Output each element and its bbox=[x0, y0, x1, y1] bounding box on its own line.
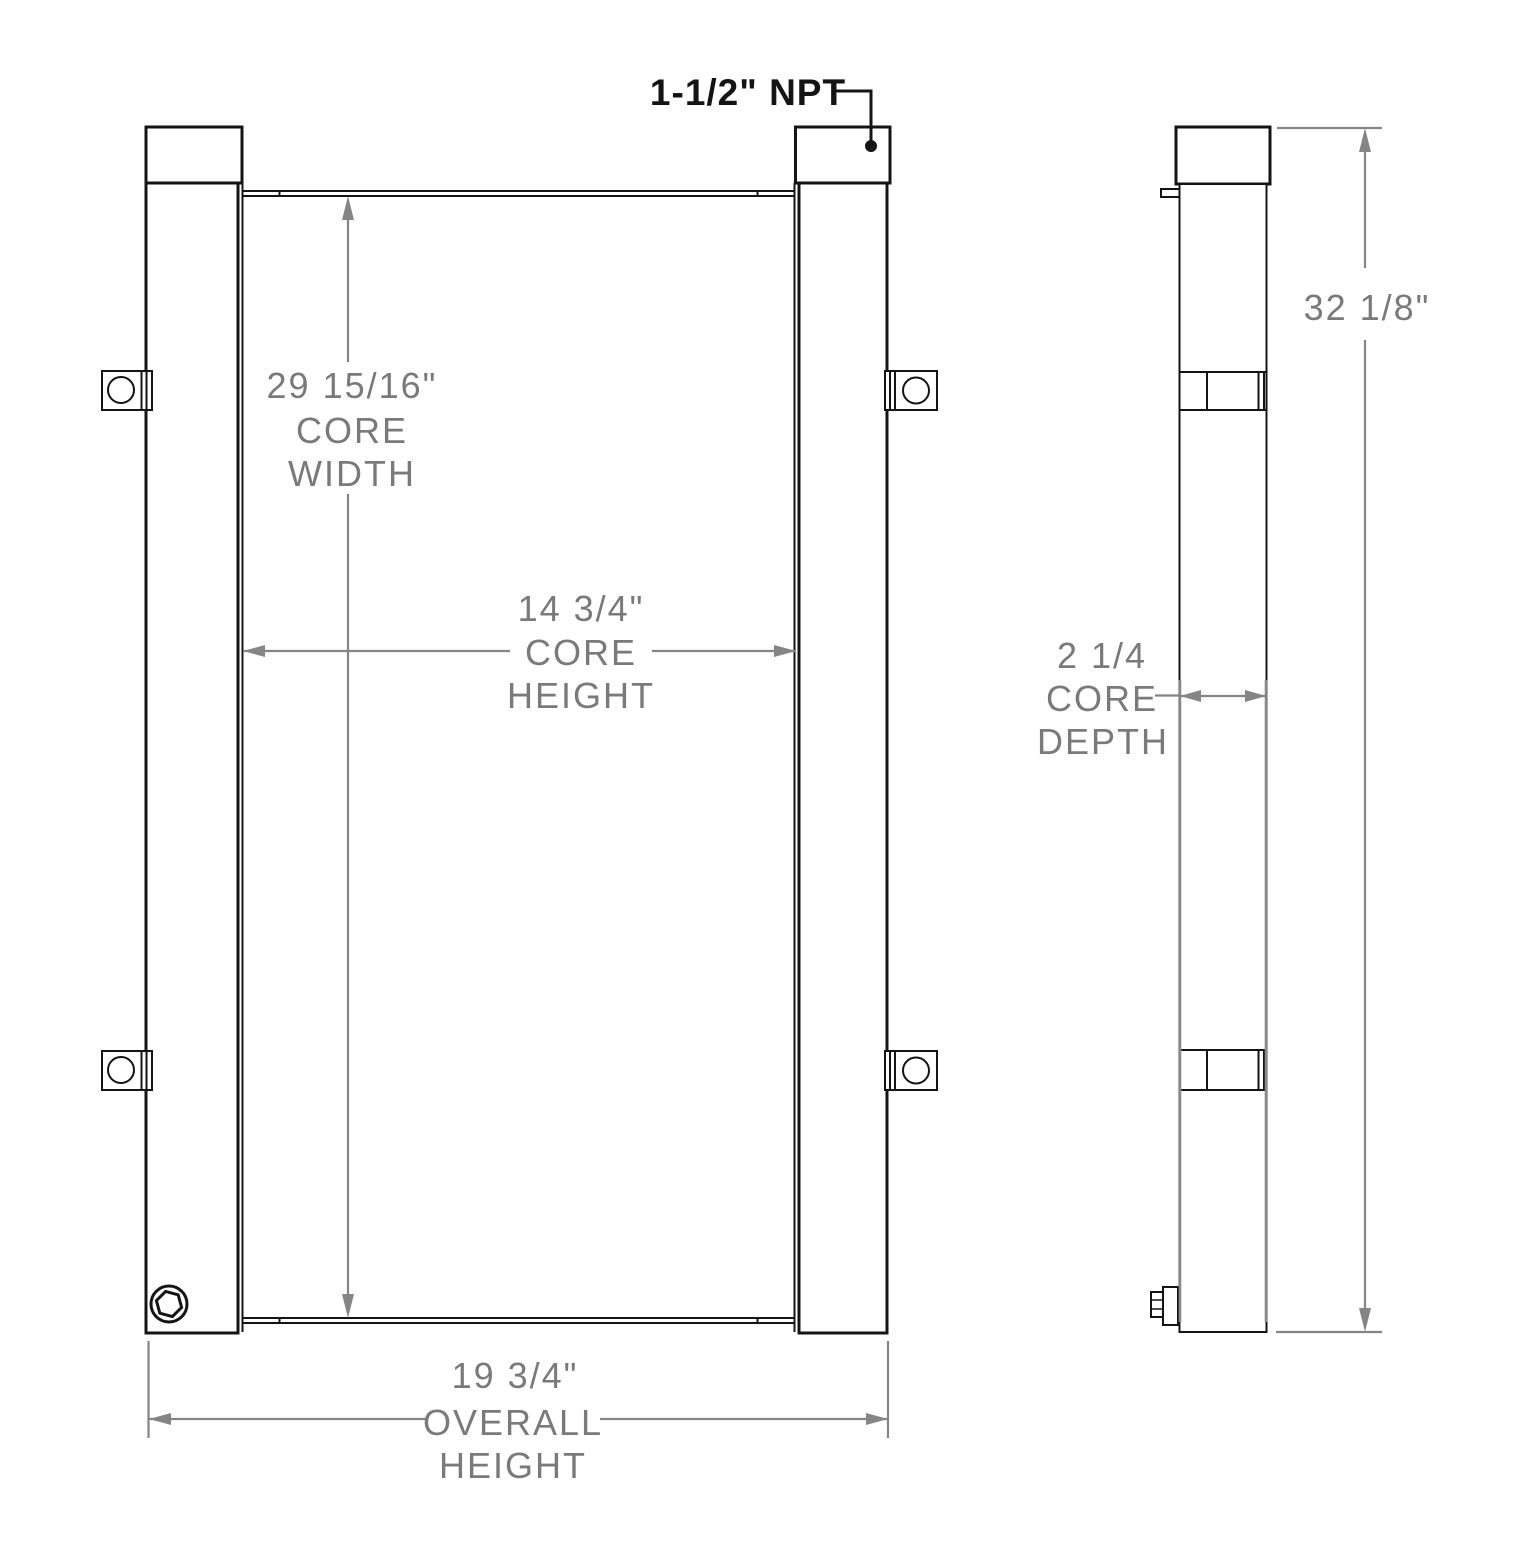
arrowhead-left-icon bbox=[243, 645, 265, 657]
core-height-label-1: CORE bbox=[525, 632, 637, 673]
mounting-bracket-left-bottom bbox=[102, 1051, 152, 1090]
drawing-canvas: 1-1/2" NPT 29 15/16" CORE WIDTH 14 3/4" … bbox=[0, 0, 1537, 1543]
core-width-label-1: CORE bbox=[296, 410, 408, 451]
arrowhead-up-icon bbox=[1359, 128, 1371, 152]
mounting-bracket-right-top bbox=[885, 371, 937, 410]
technical-drawing-page: 1-1/2" NPT 29 15/16" CORE WIDTH 14 3/4" … bbox=[0, 0, 1537, 1543]
left-tank-body bbox=[146, 183, 238, 1333]
arrowhead-right-icon bbox=[774, 645, 796, 657]
arrowhead-down-icon bbox=[1359, 1308, 1371, 1332]
side-body bbox=[1180, 184, 1267, 1332]
left-tank bbox=[146, 127, 243, 1333]
dimension-core-height: 14 3/4" CORE HEIGHT bbox=[243, 588, 796, 716]
core-width-value: 29 15/16" bbox=[267, 365, 438, 406]
right-tank-cap bbox=[796, 127, 891, 183]
right-tank bbox=[795, 127, 891, 1333]
side-tank-cap bbox=[1176, 127, 1270, 184]
overall-height-label-2: HEIGHT bbox=[439, 1445, 587, 1486]
arrowhead-left-icon bbox=[149, 1413, 171, 1425]
core-depth-label-2: DEPTH bbox=[1037, 721, 1169, 762]
bracket-plate bbox=[102, 1051, 152, 1090]
core-width-label-2: WIDTH bbox=[288, 453, 416, 494]
mounting-bracket-right-bottom bbox=[885, 1051, 937, 1090]
front-view bbox=[102, 127, 937, 1333]
left-tank-cap bbox=[146, 127, 242, 183]
side-drain-plug bbox=[1151, 1287, 1178, 1325]
core-height-label-2: HEIGHT bbox=[507, 675, 655, 716]
side-overall-height-value: 32 1/8" bbox=[1304, 287, 1431, 328]
dimension-overall-height: 19 3/4" OVERALL HEIGHT bbox=[149, 1341, 889, 1486]
core-face bbox=[243, 191, 795, 1323]
dimension-core-width: 29 15/16" CORE WIDTH bbox=[267, 196, 438, 1318]
core-height-value: 14 3/4" bbox=[518, 588, 645, 629]
npt-port-label: 1-1/2" NPT bbox=[650, 72, 846, 113]
side-top-tab bbox=[1161, 189, 1180, 197]
plug-body bbox=[1163, 1287, 1178, 1325]
core-depth-value: 2 1/4 bbox=[1057, 635, 1147, 676]
mounting-bracket-left-top bbox=[102, 371, 152, 410]
overall-height-label-1: OVERALL bbox=[423, 1402, 603, 1443]
bracket-plate bbox=[102, 371, 152, 410]
core-depth-label-1: CORE bbox=[1046, 678, 1158, 719]
dimension-side-overall-height: 32 1/8" bbox=[1276, 128, 1430, 1332]
arrowhead-right-icon bbox=[866, 1413, 888, 1425]
right-tank-body bbox=[799, 183, 887, 1333]
overall-height-value: 19 3/4" bbox=[452, 1355, 579, 1396]
leader-dot bbox=[865, 140, 877, 152]
plug-hex-head bbox=[1151, 1292, 1163, 1317]
arrowhead-down-icon bbox=[342, 1294, 354, 1318]
arrowhead-up-icon bbox=[342, 196, 354, 220]
